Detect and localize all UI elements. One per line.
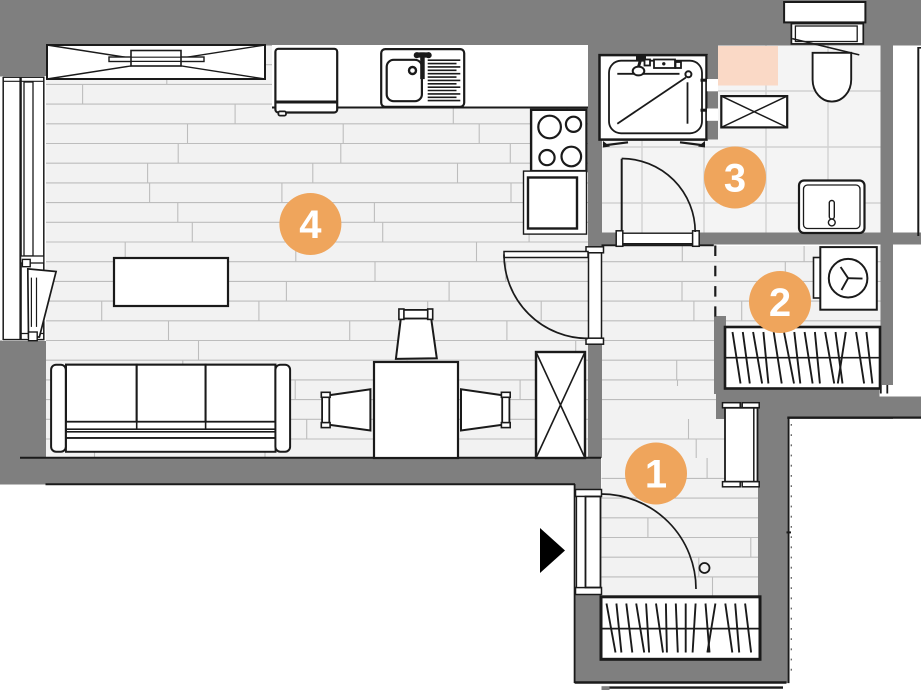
svg-text:1: 1 bbox=[645, 453, 667, 497]
svg-text:4: 4 bbox=[299, 203, 322, 247]
svg-text:3: 3 bbox=[724, 157, 746, 201]
svg-text:2: 2 bbox=[769, 281, 791, 325]
